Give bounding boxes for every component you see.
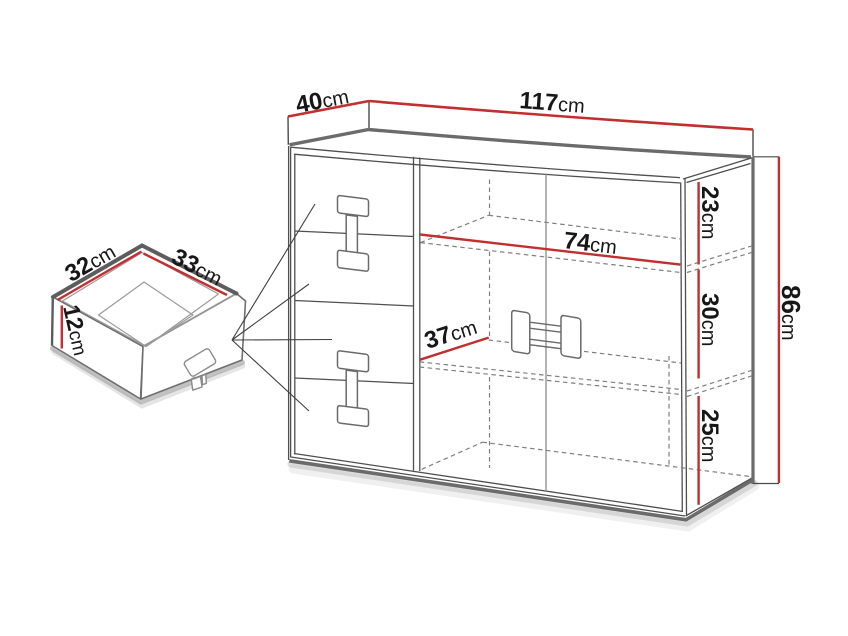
svg-text:30cm: 30cm bbox=[696, 293, 723, 346]
svg-text:25cm: 25cm bbox=[696, 409, 723, 462]
svg-text:23cm: 23cm bbox=[696, 186, 723, 239]
